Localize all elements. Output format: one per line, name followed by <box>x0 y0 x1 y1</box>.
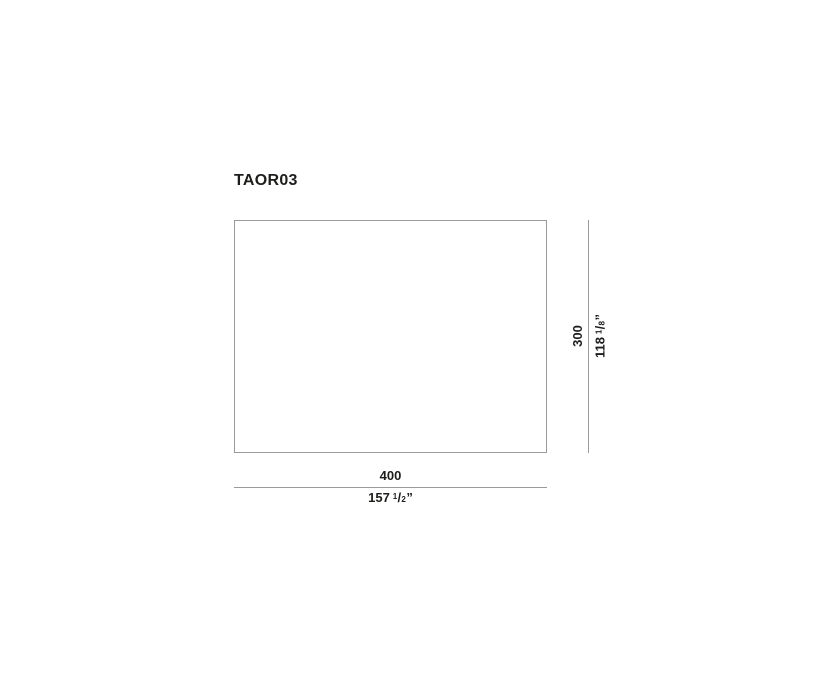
height-imperial-slash: / <box>593 326 608 330</box>
height-imperial-fraction: 1/8 <box>593 321 608 334</box>
width-imperial-unit: ” <box>406 490 413 505</box>
height-imperial-denominator: 8 <box>598 321 607 325</box>
width-imperial-whole: 157 <box>368 490 390 505</box>
width-imperial-fraction: 1/2 <box>393 490 406 505</box>
width-imperial-label: 1571/2” <box>234 490 547 507</box>
height-imperial-label: 1181/8” <box>592 314 609 358</box>
width-metric-label: 400 <box>234 469 547 483</box>
product-code-title: TAOR03 <box>234 173 298 189</box>
height-imperial-whole: 118 <box>593 337 608 358</box>
height-imperial-unit: ” <box>593 314 608 321</box>
height-imperial-numerator: 1 <box>594 330 603 334</box>
height-metric-label: 300 <box>571 325 585 347</box>
dimension-spec-sheet: TAOR03 400 1571/2” 300 1181/8” <box>0 0 840 679</box>
height-dimension-line <box>588 220 589 453</box>
width-dimension-line <box>234 487 547 488</box>
tabletop-outline-rectangle <box>234 220 547 453</box>
